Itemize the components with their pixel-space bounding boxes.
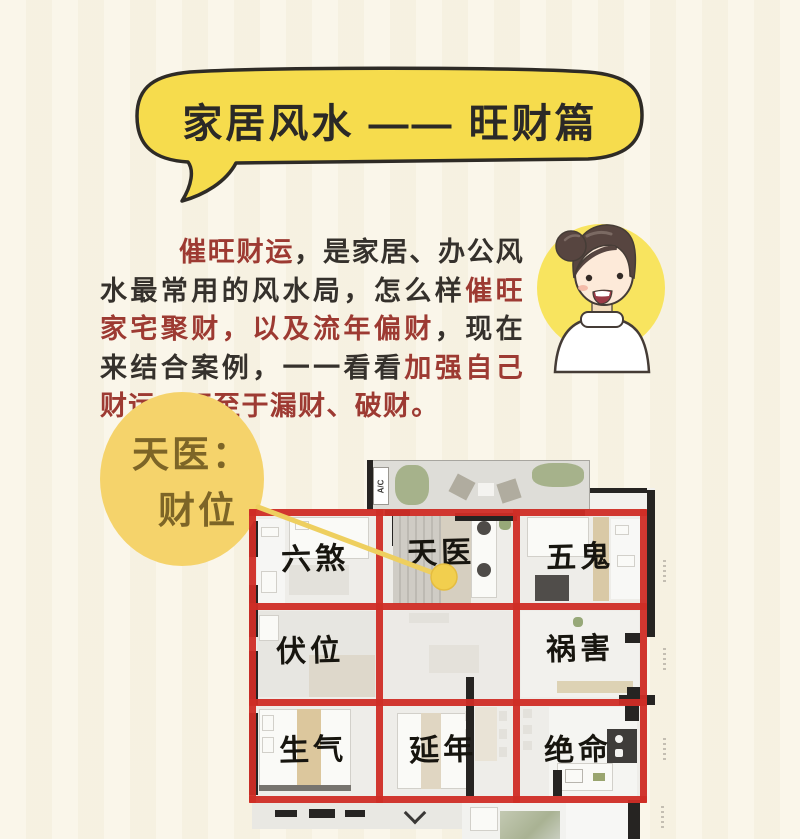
balcony-plants — [395, 465, 429, 505]
dimension-mark — [663, 560, 666, 584]
label-huohai: 祸害 — [545, 623, 614, 669]
grid-line-h1 — [249, 603, 647, 610]
chair — [499, 747, 507, 757]
label-liusha: 六煞 — [280, 533, 349, 579]
wall-segment — [647, 490, 655, 637]
side-table — [477, 521, 491, 535]
label-tianyi: 天医 — [406, 527, 475, 573]
chair — [499, 729, 507, 739]
bottom-balcony-box — [470, 807, 498, 831]
avatar-blush — [578, 285, 588, 291]
avatar-teeth — [595, 291, 610, 297]
label-shengqi: 生气 — [278, 724, 347, 770]
grid-line-h2 — [249, 699, 647, 706]
dimension-mark — [663, 738, 666, 762]
pillow — [295, 521, 309, 530]
avatar-collar — [581, 312, 623, 327]
dark-table — [535, 575, 569, 601]
pillow — [262, 737, 274, 753]
bottom-right-strip — [566, 800, 628, 839]
label-wugui: 五鬼 — [545, 531, 614, 577]
bath-fixture — [261, 571, 277, 593]
grid-line-top — [249, 509, 647, 516]
bench — [557, 681, 633, 693]
callout-line1: 天医： — [132, 424, 252, 478]
infographic-canvas: 家居风水 —— 旺财篇 催旺财运，是家居、办公风水最常用的风水局，怎么样催旺家宅… — [0, 0, 800, 839]
appliance-dial — [615, 749, 623, 757]
floor-plan: A/C — [249, 455, 655, 839]
balcony-table — [478, 483, 494, 496]
cabinet — [409, 613, 449, 623]
grid-line-right — [640, 509, 647, 803]
page-title: 家居风水 —— 旺财篇 — [130, 80, 650, 160]
bottom-balcony-green — [500, 811, 560, 839]
chair — [523, 741, 532, 750]
grid-line-left — [249, 509, 256, 803]
chair — [499, 711, 507, 721]
intro-run: ，是家居、办公风水最常用的风水局，怎么样 — [100, 237, 524, 306]
label-yannian: 延年 — [408, 724, 477, 770]
chair — [523, 725, 532, 734]
sink — [565, 769, 583, 783]
callout-line2: 财位 — [158, 480, 238, 534]
wall-segment — [590, 488, 647, 493]
avatar-eye-right — [617, 273, 623, 279]
callout-circle: 天医： 财位 — [100, 392, 264, 566]
intro-run: 催旺财运 — [179, 237, 294, 267]
window-block — [345, 810, 365, 817]
grid-line-v2 — [513, 509, 520, 803]
wall-segment — [625, 633, 640, 643]
ac-unit: A/C — [373, 467, 389, 505]
chair — [523, 709, 532, 718]
window-block — [275, 810, 297, 817]
dimension-mark — [663, 648, 666, 672]
avatar — [527, 212, 677, 374]
dimension-mark — [661, 806, 664, 830]
wall-segment — [628, 800, 640, 839]
grid-line-bottom — [249, 796, 647, 803]
balcony-plants — [532, 463, 584, 487]
bath-fixture — [261, 527, 279, 537]
grid-line-v1 — [376, 509, 383, 803]
ac-label: A/C — [377, 479, 386, 493]
pillow — [262, 715, 274, 731]
dining-table — [475, 707, 497, 761]
side-table — [477, 563, 491, 577]
window-block — [309, 809, 335, 818]
footboard — [259, 785, 351, 791]
appliance-dial — [615, 735, 623, 743]
green-item — [593, 773, 605, 781]
wall-segment — [625, 705, 639, 721]
avatar-eye-left — [586, 275, 592, 281]
label-fuwei: 伏位 — [275, 625, 344, 671]
label-jueming: 绝命 — [543, 724, 612, 770]
rug — [429, 645, 479, 673]
bath-fixture — [617, 555, 635, 567]
wall-segment — [553, 770, 562, 796]
bath-fixture — [615, 525, 629, 535]
